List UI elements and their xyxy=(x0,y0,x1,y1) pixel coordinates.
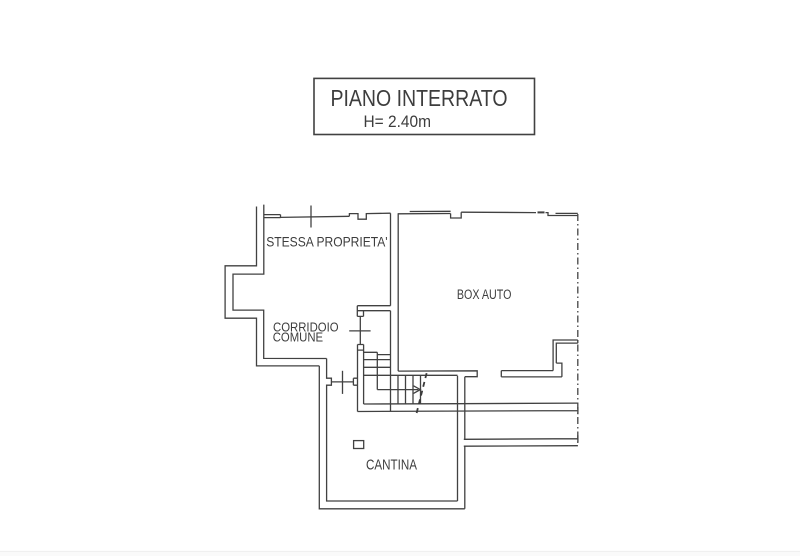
svg-text:PIANO INTERRATO: PIANO INTERRATO xyxy=(331,85,508,111)
svg-text:STESSA PROPRIETA': STESSA PROPRIETA' xyxy=(266,235,387,250)
svg-text:COMUNE: COMUNE xyxy=(273,331,323,345)
svg-text:BOX AUTO: BOX AUTO xyxy=(457,287,512,302)
svg-text:H= 2.40m: H= 2.40m xyxy=(364,112,432,131)
svg-text:CANTINA: CANTINA xyxy=(366,458,417,474)
